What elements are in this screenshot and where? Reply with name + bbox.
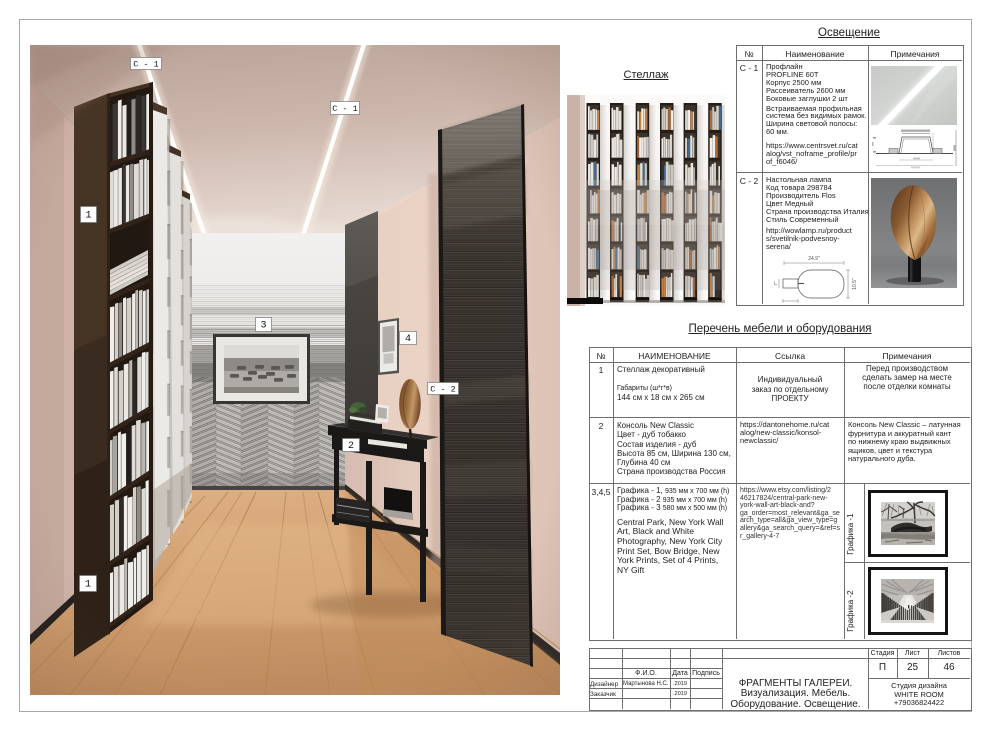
svg-text:4: 4: [405, 334, 411, 345]
svg-text:1: 1: [85, 580, 91, 591]
svg-text:C - 1: C - 1: [332, 104, 358, 114]
svg-text:C - 1: C - 1: [133, 60, 159, 70]
svg-text:1: 1: [85, 211, 91, 222]
svg-text:C - 2: C - 2: [430, 385, 456, 395]
svg-text:24.9": 24.9": [808, 256, 820, 262]
svg-text:7": 7": [773, 281, 778, 286]
svg-text:10.5": 10.5": [852, 278, 858, 290]
svg-text:3: 3: [260, 321, 266, 332]
svg-text:2: 2: [348, 441, 354, 452]
